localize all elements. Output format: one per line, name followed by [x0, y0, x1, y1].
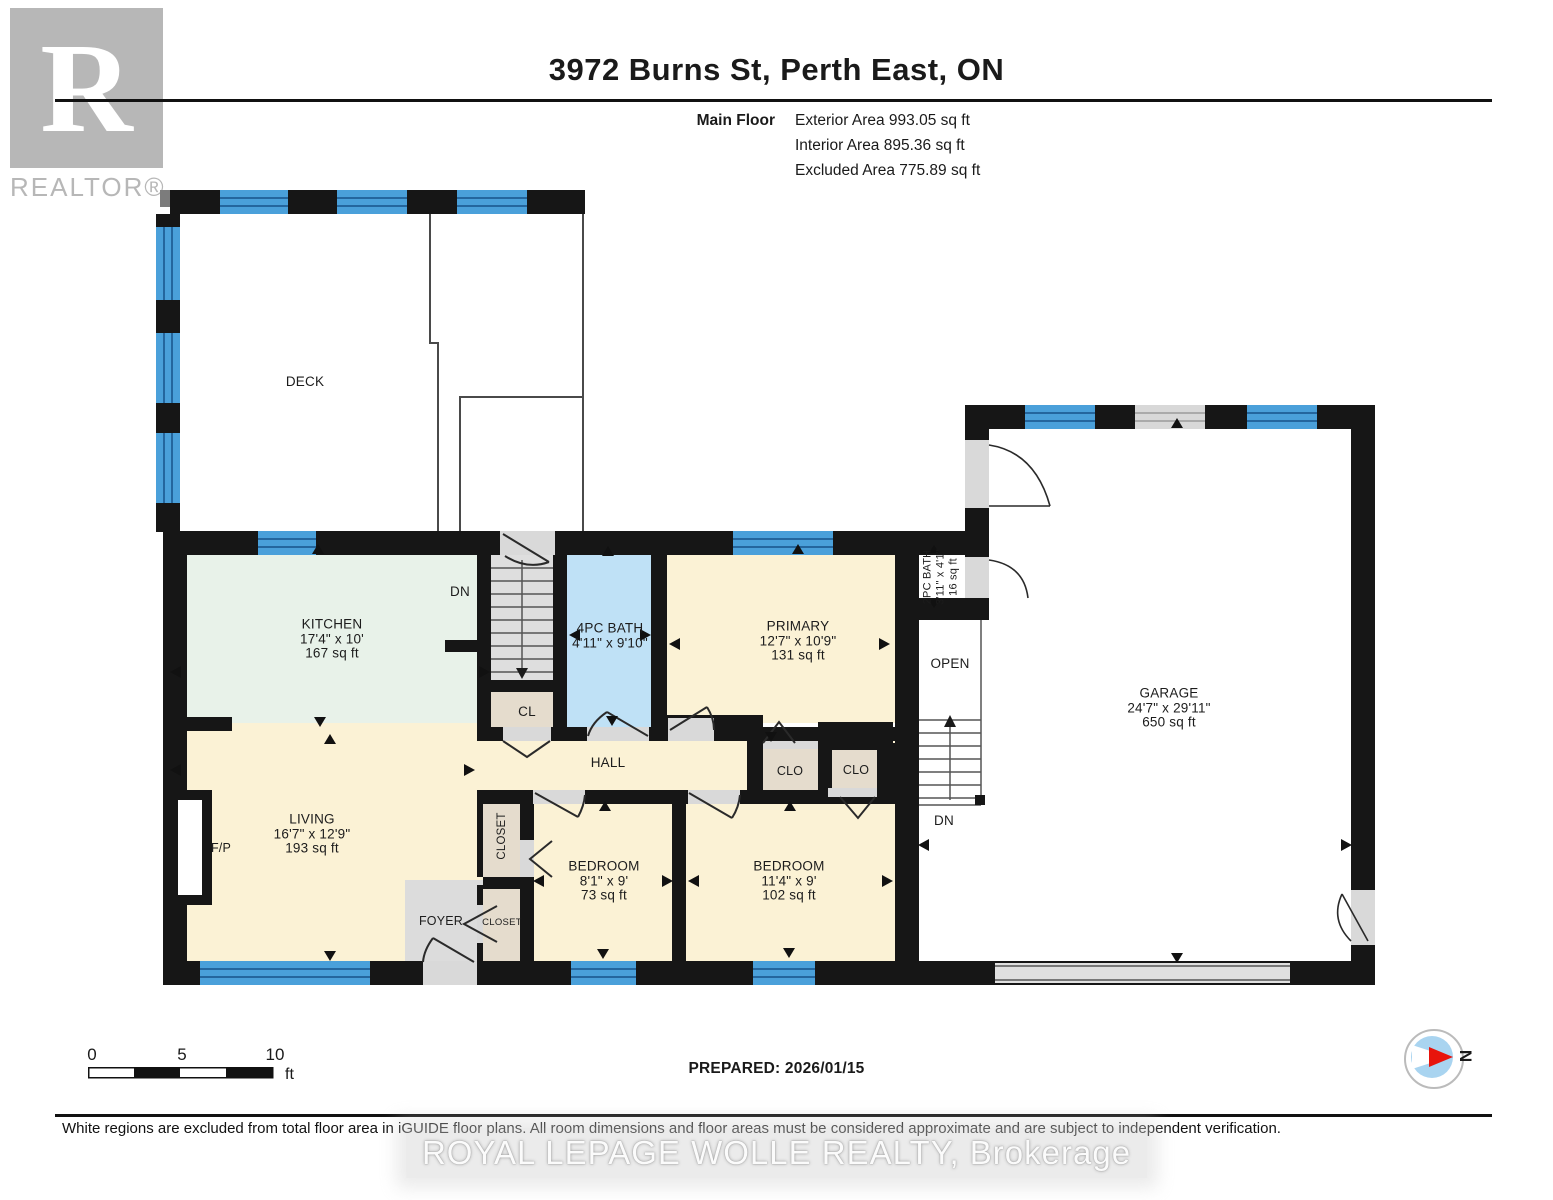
label-closet-small: CLOSET — [482, 916, 522, 931]
deck-boundaries — [430, 214, 583, 531]
room-dims: 11'4" x 9' — [753, 874, 824, 889]
label-dn-basement: DN — [450, 585, 470, 600]
brokerage-watermark: ROYAL LEPAGE WOLLE REALTY, Brokerage — [406, 1128, 1147, 1178]
room-area: 102 sq ft — [753, 888, 824, 903]
room-dims: 3'11" x 4'1" — [935, 549, 948, 605]
room-area: 193 sq ft — [274, 841, 351, 856]
room-label-primary: PRIMARY 12'7" x 10'9" 131 sq ft — [760, 619, 837, 663]
room-label-bedroom-1: BEDROOM 8'1" x 9' 73 sq ft — [568, 859, 639, 903]
room-label-foyer: FOYER — [419, 914, 463, 929]
room-name: BEDROOM — [568, 859, 639, 874]
room-name: 2PC BATH — [922, 549, 935, 605]
room-name: LIVING — [274, 812, 351, 827]
room-label-deck: DECK — [286, 375, 324, 390]
room-name: 4PC BATH — [572, 622, 648, 637]
fireplace-box — [178, 800, 202, 895]
compass-needle-icon — [1404, 1029, 1460, 1085]
garage-door — [995, 963, 1290, 983]
room-area: 131 sq ft — [760, 648, 837, 663]
label-clo-2: CLO — [843, 763, 869, 778]
room-label-hall: HALL — [591, 756, 626, 771]
room-label-kitchen: KITCHEN 17'4" x 10' 167 sq ft — [300, 617, 364, 661]
label-clo-1: CLO — [777, 764, 803, 779]
room-name: KITCHEN — [300, 617, 364, 632]
floor-plan-canvas — [0, 0, 1553, 1200]
room-dims: 17'4" x 10' — [300, 632, 364, 647]
dim-arrow-icon — [918, 839, 929, 851]
room-dims: 12'7" x 10'9" — [760, 634, 837, 649]
stair-up-arrow-icon — [944, 715, 956, 727]
label-fireplace: F/P — [211, 841, 231, 856]
room-label-2pc-bath: 2PC BATH 3'11" x 4'1" 16 sq ft — [922, 549, 961, 605]
room-dims: 24'7" x 29'11" — [1127, 701, 1210, 716]
room-label-living: LIVING 16'7" x 12'9" 193 sq ft — [274, 812, 351, 856]
room-name: GARAGE — [1127, 686, 1210, 701]
footer-divider — [55, 1114, 1492, 1117]
label-closet-tall: CLOSET — [495, 812, 510, 859]
label-dn-garage: DN — [934, 814, 954, 829]
room-label-garage: GARAGE 24'7" x 29'11" 650 sq ft — [1127, 686, 1210, 730]
room-label-bedroom-2: BEDROOM 11'4" x 9' 102 sq ft — [753, 859, 824, 903]
room-dims: 16'7" x 12'9" — [274, 827, 351, 842]
room-dims: 4'11" x 9'10" — [572, 636, 648, 651]
stairs-garage — [919, 598, 981, 805]
room-area: 167 sq ft — [300, 646, 364, 661]
room-name: BEDROOM — [753, 859, 824, 874]
stair-post — [975, 795, 985, 805]
room-area: 16 sq ft — [948, 549, 961, 605]
room-area: 73 sq ft — [568, 888, 639, 903]
label-cl: CL — [518, 705, 536, 720]
room-dims: 8'1" x 9' — [568, 874, 639, 889]
dim-arrow-icon — [1341, 839, 1352, 851]
deck-railing — [156, 190, 585, 532]
floor-plan-page: R 3972 Burns St, Perth East, ON REALTOR®… — [0, 0, 1553, 1200]
room-area: 650 sq ft — [1127, 715, 1210, 730]
prepared-date: PREPARED: 2026/01/15 — [0, 1060, 1553, 1078]
room-label-open: OPEN — [930, 657, 969, 672]
room-name: PRIMARY — [760, 619, 837, 634]
compass-north-label: N — [1455, 1050, 1475, 1062]
room-label-4pc-bath: 4PC BATH 4'11" x 9'10" — [572, 622, 648, 651]
